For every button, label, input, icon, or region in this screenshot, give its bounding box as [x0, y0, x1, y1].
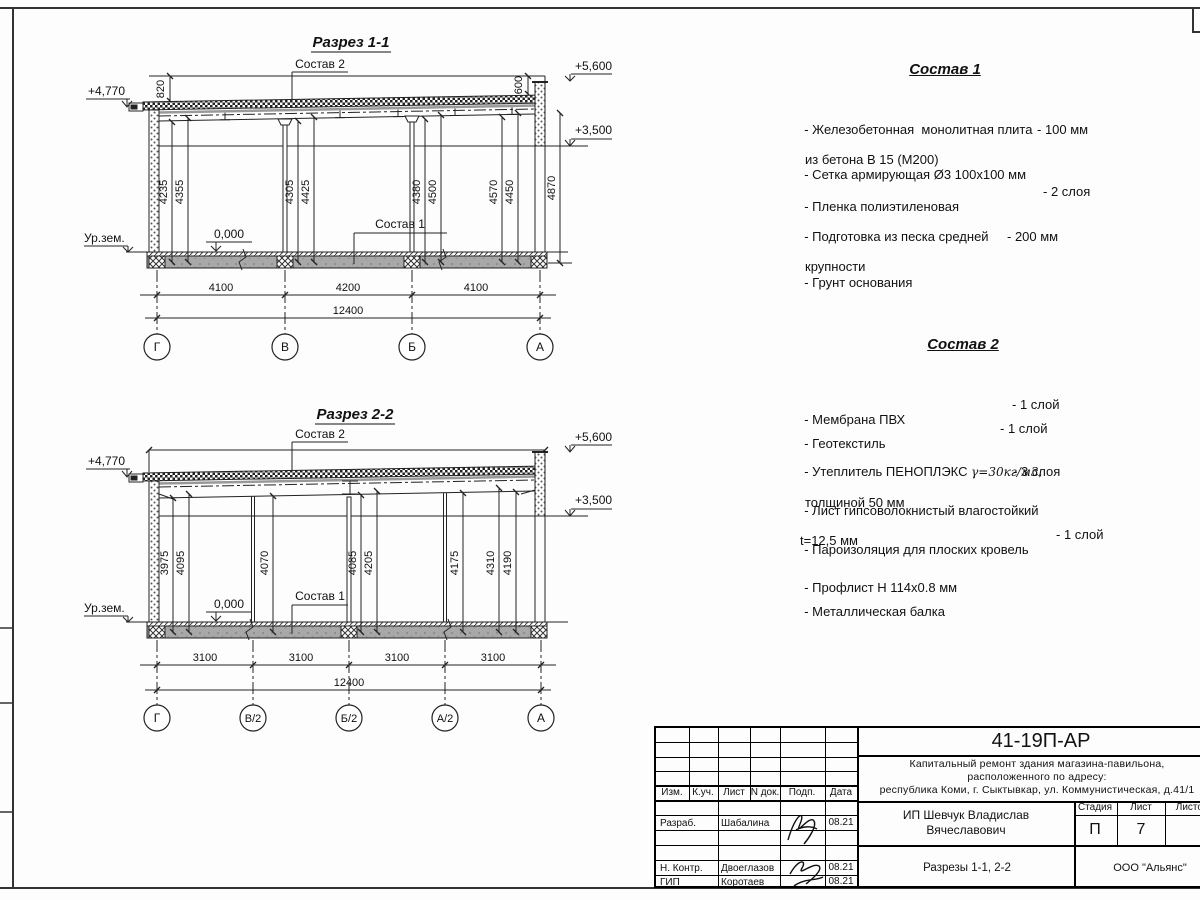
divider — [656, 830, 857, 831]
vert-dim: 4235 — [158, 180, 170, 204]
role-label: Н. Контр. — [660, 863, 703, 874]
vert-dim: 4425 — [300, 180, 312, 204]
sostav1-callout: Состав 1 — [295, 589, 345, 603]
sheet-header: Лист — [1130, 803, 1152, 813]
divider — [1165, 801, 1166, 845]
vert-dim: 4355 — [174, 180, 186, 204]
project-description-line: республика Коми, г. Сыктывкар, ул. Комму… — [880, 785, 1195, 795]
ground-level-label: Ур.зем. — [84, 231, 125, 245]
item-value: - 200 мм — [1007, 229, 1058, 244]
axis-bubble-label: А/2 — [437, 713, 454, 725]
item-value: - 100 мм — [1037, 122, 1088, 137]
date-value: 08.21 — [828, 877, 853, 887]
vert-dim: 4570 — [488, 180, 500, 204]
document-number: 41-19П-АР — [992, 736, 1091, 746]
item-value: - 1 слой — [1056, 527, 1104, 542]
date-value: 08.21 — [828, 818, 853, 828]
item-text: - Металлическая балка — [804, 604, 945, 619]
vert-dim: 3975 — [159, 551, 171, 575]
vert-dim: 4175 — [449, 551, 461, 575]
span-dim: 3100 — [385, 652, 409, 664]
divider — [1074, 801, 1076, 886]
divider — [857, 845, 1200, 847]
vert-dim: 4095 — [175, 551, 187, 575]
vert-dim: 4205 — [363, 551, 375, 575]
sheet-title: Разрезы 1-1, 2-2 — [923, 863, 1011, 873]
axis-bubble-label: Б — [408, 340, 416, 354]
elevation-top-right: +5,600 — [575, 430, 612, 444]
organization-name: ООО "Альянс" — [1113, 863, 1187, 873]
zero-level-label: 0,000 — [214, 597, 244, 611]
title-block: Изм. К.уч. Лист N док. Подп. Дата Разраб… — [654, 726, 1200, 888]
list-item: - Подготовка из песка средней крупности … — [797, 214, 1127, 304]
col-header-ndok: N док. — [751, 788, 780, 798]
col-header-kuch: К.уч. — [692, 788, 714, 798]
divider — [656, 875, 857, 876]
divider — [656, 815, 857, 816]
total-dim: 12400 — [334, 677, 365, 689]
client-name-line: Вячеславович — [926, 825, 1005, 835]
divider — [825, 728, 826, 886]
axis-bubble-label: Г — [154, 711, 161, 725]
item-text: - Пароизоляция для плоских кровель — [804, 542, 1028, 557]
project-description-line: расположенного по адресу: — [967, 772, 1106, 782]
staff-name: Коротаев — [721, 877, 764, 888]
divider — [1117, 801, 1118, 845]
span-dim: 4100 — [209, 282, 233, 294]
item-text: - Подготовка из песка средней — [804, 229, 988, 244]
list-item: - Металлическая балка — [797, 589, 1127, 619]
ground-level-label: Ур.зем. — [84, 601, 125, 615]
divider — [718, 728, 719, 886]
col-header-data: Дата — [830, 788, 852, 798]
item-text: - Железобетонная монолитная плита — [804, 122, 1032, 137]
divider — [689, 728, 690, 800]
vert-dim: 4500 — [427, 180, 439, 204]
axis-bubble-label: А — [537, 711, 545, 725]
item-text: - Лист гипсоволокнистый влагостойкий — [804, 503, 1038, 518]
divider — [656, 771, 857, 772]
staff-name: Двоеглазов — [721, 863, 774, 874]
project-description-line: Капитальный ремонт здания магазина-павил… — [910, 759, 1165, 769]
zero-level-label: 0,000 — [214, 227, 244, 241]
sheet-number: 7 — [1137, 825, 1146, 835]
item-value: - 3 слоя — [1013, 464, 1060, 479]
divider — [780, 728, 781, 886]
divider — [656, 742, 857, 743]
axis-bubble-label: В — [281, 340, 289, 354]
sostav1-callout: Состав 1 — [375, 217, 425, 231]
item-value: - 2 слоя — [1043, 184, 1090, 199]
item-text: - Грунт основания — [804, 275, 912, 290]
item-value: - 1 слой — [1000, 421, 1048, 436]
vert-dim: 4870 — [546, 176, 558, 200]
sostav2-heading: Состав 2 — [927, 336, 999, 353]
divider — [857, 755, 1200, 757]
stage-value: П — [1089, 825, 1101, 835]
item-text: - Сетка армирующая Ø3 100х100 мм — [804, 167, 1026, 182]
vert-dim: 4310 — [485, 551, 497, 575]
axis-bubble-label: А — [536, 340, 544, 354]
divider — [656, 757, 857, 758]
dim-820: 820 — [155, 80, 167, 98]
item-text: - Пленка полиэтиленовая — [804, 199, 959, 214]
vert-dim: 4085 — [347, 551, 359, 575]
vert-dim: 4070 — [259, 551, 271, 575]
list-item: - Сетка армирующая Ø3 100х100 мм — [797, 152, 1127, 182]
elevation-left: +4,770 — [88, 454, 125, 468]
elevation-left: +4,770 — [88, 84, 125, 98]
stage-header: Стадия — [1078, 803, 1112, 813]
role-label: ГИП — [660, 877, 680, 888]
list-item: - Грунт основания — [797, 260, 1127, 290]
span-dim: 4100 — [464, 282, 488, 294]
elevation-top-right: +5,600 — [575, 59, 612, 73]
span-dim: 3100 — [193, 652, 217, 664]
col-header-list: Лист — [723, 788, 745, 798]
corner-stamp-box — [1193, 8, 1200, 32]
span-dim: 3100 — [481, 652, 505, 664]
divider — [656, 800, 857, 802]
total-dim: 12400 — [333, 305, 364, 317]
divider — [857, 728, 859, 886]
col-header-izm: Изм. — [661, 788, 682, 798]
elevation-mid-right: +3,500 — [575, 123, 612, 137]
staff-name: Шабалина — [721, 818, 769, 829]
sostav2-callout: Состав 2 — [295, 57, 345, 71]
span-dim: 4200 — [336, 282, 360, 294]
vert-dim: 4305 — [284, 180, 296, 204]
item-value: - 1 слой — [1012, 397, 1060, 412]
vert-dim: 4450 — [504, 180, 516, 204]
divider — [656, 845, 857, 846]
vert-dim: 4190 — [502, 551, 514, 575]
axis-bubble-label: Г — [154, 340, 161, 354]
col-header-podp: Подп. — [789, 788, 816, 798]
sostav2-callout: Состав 2 — [295, 427, 345, 441]
role-label: Разраб. — [660, 818, 696, 829]
dim-600: 600 — [513, 76, 525, 94]
divider — [656, 860, 857, 861]
elevation-mid-right: +3,500 — [575, 493, 612, 507]
divider — [1074, 815, 1200, 816]
client-name-line: ИП Шевчук Владислав — [903, 810, 1029, 820]
sostav1-heading: Состав 1 — [909, 61, 981, 78]
item-text: - Утеплитель ПЕНОПЛЭКС — [804, 464, 971, 479]
date-value: 08.21 — [828, 863, 853, 873]
axis-bubble-label: В/2 — [245, 713, 262, 725]
axis-bubble-label: Б/2 — [341, 713, 357, 725]
section-2-2-text: Разрез 2-2 Состав 2 Состав 1 +4,770 +5,6… — [84, 406, 612, 725]
section-1-title: Разрез 1-1 — [312, 34, 389, 51]
section-2-title: Разрез 2-2 — [316, 406, 394, 423]
vert-dim: 4380 — [411, 180, 423, 204]
span-dim: 3100 — [289, 652, 313, 664]
sheets-header: Листов — [1176, 803, 1200, 813]
